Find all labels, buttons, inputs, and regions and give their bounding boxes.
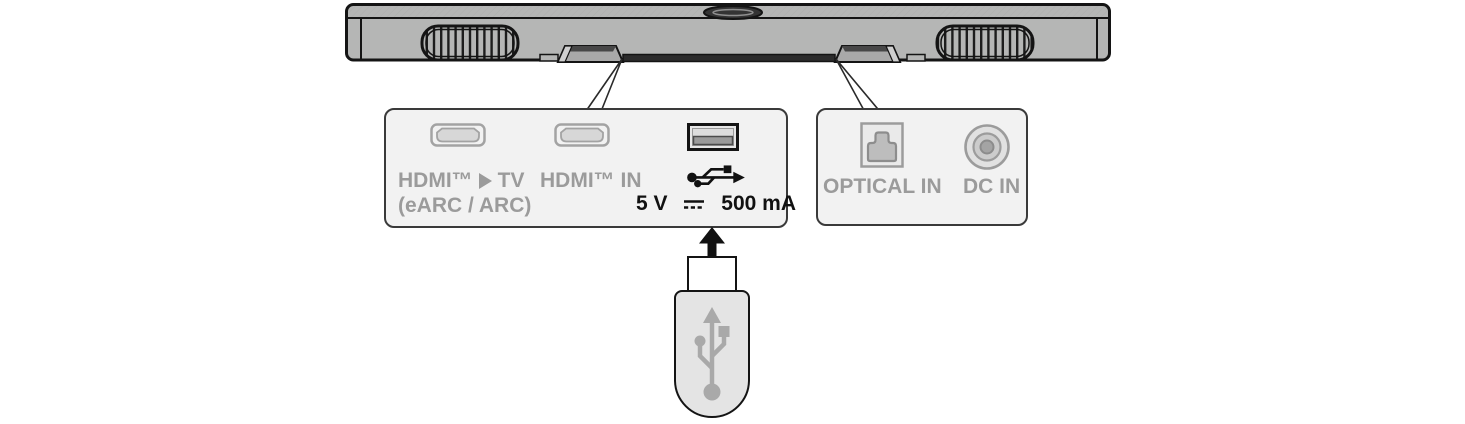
hdmi-tv-label-sub: (eARC / ARC)	[398, 193, 531, 218]
usb-trident-icon	[685, 164, 747, 189]
right-notch	[835, 46, 900, 62]
usb-trident-up-icon	[688, 306, 736, 402]
optical-in-label: OPTICAL IN	[823, 174, 942, 199]
usb-flash-drive	[674, 290, 750, 418]
hdmi-in-label: HDMI™ IN	[540, 168, 642, 193]
usb-volts: 5 V	[636, 192, 668, 216]
left-notch	[558, 46, 623, 62]
hdmi-usb-port-panel: HDMI™ TV (eARC / ARC) HDMI™ IN 5 V	[384, 108, 788, 228]
right-speaker-grille	[937, 26, 1033, 60]
soundbar-body	[347, 5, 1110, 63]
insert-arrow-icon	[698, 227, 726, 258]
optical-port-icon	[860, 122, 904, 168]
dc-in-label: DC IN	[963, 174, 1020, 199]
hdmi-tv-label-prefix: HDMI™	[398, 168, 473, 193]
callout-line-left	[584, 59, 622, 114]
soundbar-connection-diagram: HDMI™ TV (eARC / ARC) HDMI™ IN 5 V	[0, 0, 1465, 424]
usb-drive-connector	[687, 256, 737, 292]
bottom-recess-shadow	[623, 55, 835, 62]
top-oval-detail	[704, 6, 762, 19]
callout-line-right	[836, 59, 882, 114]
dc-in-port-icon	[962, 122, 1012, 172]
hdmi-tv-label: HDMI™ TV (eARC / ARC)	[398, 168, 531, 218]
hdmi-tv-label-suffix: TV	[498, 168, 525, 193]
left-bottom-step	[540, 55, 558, 62]
usb-current: 500 mA	[721, 192, 796, 216]
usb-port-icon	[687, 123, 739, 151]
left-speaker-grille	[422, 26, 518, 60]
hdmi-tv-port-icon	[430, 123, 486, 147]
usb-rating-group: 5 V 500 mA	[636, 164, 796, 216]
usb-rating-text: 5 V 500 mA	[636, 192, 796, 216]
hdmi-in-port-icon	[554, 123, 610, 147]
dc-current-symbol-icon	[683, 197, 705, 211]
right-triangle-icon	[479, 173, 492, 189]
right-bottom-step	[907, 55, 925, 62]
optical-dc-port-panel: OPTICAL IN DC IN	[816, 108, 1028, 226]
